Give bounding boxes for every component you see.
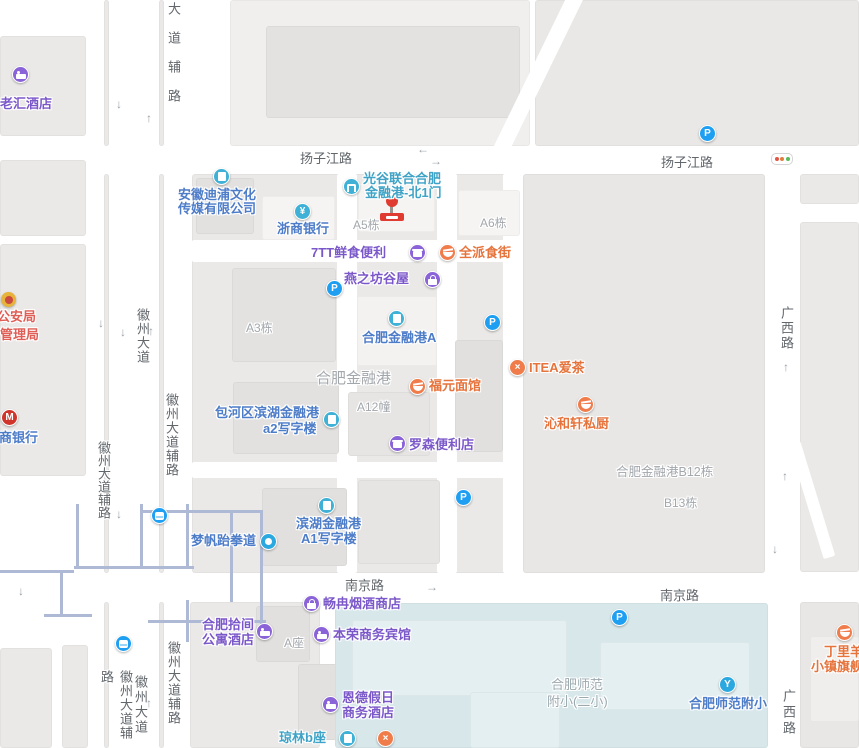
lane-divider: [104, 0, 109, 146]
convenience-store-icon[interactable]: [409, 244, 426, 261]
area-label: A3栋: [246, 319, 273, 336]
poi-label[interactable]: 梦帆跆拳道: [191, 533, 256, 548]
road: [437, 174, 457, 573]
school-icon[interactable]: Y: [719, 676, 736, 693]
poi-label[interactable]: 福元面馆: [429, 378, 481, 393]
poi-label[interactable]: 包河区滨湖金融港: [215, 405, 319, 420]
map-block: [0, 648, 52, 748]
area-label: A座: [284, 634, 304, 651]
direction-arrow: ↓: [120, 326, 126, 338]
area-label: A12幢: [357, 398, 390, 415]
restaurant-icon[interactable]: ×: [509, 359, 526, 376]
parking-icon[interactable]: P: [611, 609, 628, 626]
direction-arrow: ↓: [116, 508, 122, 520]
road-label: 大道辅路: [164, 2, 183, 118]
building-icon[interactable]: [339, 730, 356, 747]
parking-icon[interactable]: P: [455, 489, 472, 506]
poi-label[interactable]: 市公安局: [0, 309, 36, 324]
parking-icon[interactable]: P: [326, 280, 343, 297]
poi-label[interactable]: 合肥拾间: [202, 617, 254, 632]
footpath-line: [186, 600, 189, 642]
footpath-line: [76, 504, 79, 569]
shop-bag-icon[interactable]: [303, 595, 320, 612]
area-label: 合肥金融港: [316, 367, 391, 388]
taekwondo-icon[interactable]: [260, 533, 277, 550]
poi-label[interactable]: 小镇旗舰店: [811, 659, 859, 674]
office-building-icon[interactable]: [318, 497, 335, 514]
map-block: [0, 160, 86, 236]
poi-label[interactable]: 丁里羊: [824, 644, 859, 659]
shop-bag-icon[interactable]: [424, 271, 441, 288]
bus-stop-icon[interactable]: [115, 635, 132, 652]
area-label: A5栋: [353, 216, 380, 233]
direction-arrow: ↓: [772, 543, 778, 555]
office-building-icon[interactable]: [323, 411, 340, 428]
hotel-icon[interactable]: [256, 623, 273, 640]
road-label: 扬子江路: [300, 148, 352, 167]
poi-label[interactable]: 罗森便利店: [409, 437, 474, 452]
direction-arrow: ↓: [18, 585, 24, 597]
poi-label[interactable]: 畅冉烟酒商店: [323, 596, 401, 611]
map-block: [0, 36, 86, 136]
poi-label[interactable]: 7TT鲜食便利: [311, 245, 386, 260]
road-label: 广西路: [777, 306, 796, 351]
poi-label[interactable]: 安徽迪浦文化: [178, 187, 256, 202]
poi-label[interactable]: 浙商银行: [277, 221, 329, 236]
bus-stop-icon[interactable]: [151, 507, 168, 524]
bank-logo-icon[interactable]: M: [1, 409, 18, 426]
road-label: 南京路: [660, 585, 699, 604]
map-canvas[interactable]: 大道辅路 扬子江路 扬子江路 徽州大道 徽州大道辅路 徽州大道辅路 南京路 南京…: [0, 0, 859, 748]
area-label: A6栋: [480, 214, 507, 231]
poi-label[interactable]: 滨湖金融港: [296, 516, 361, 531]
poi-label[interactable]: ITEA爱茶: [529, 360, 585, 375]
hotel-icon[interactable]: [313, 626, 330, 643]
gate-icon[interactable]: [343, 178, 360, 195]
building-block: [232, 268, 336, 362]
poi-label[interactable]: 商务酒店: [342, 705, 394, 720]
direction-arrow: ↑: [148, 325, 154, 337]
direction-arrow: ↓: [116, 98, 122, 110]
footpath-line: [230, 510, 233, 602]
poi-label[interactable]: 琼林b座: [279, 730, 326, 745]
company-icon[interactable]: [213, 168, 230, 185]
poi-label[interactable]: 光谷联合合肥: [363, 171, 441, 186]
area-label: B13栋: [664, 494, 697, 511]
road: [192, 462, 523, 478]
building-block: [455, 340, 503, 452]
map-block: [800, 174, 859, 204]
footpath-line: [44, 614, 92, 617]
direction-arrow: ↑: [146, 112, 152, 124]
footpath-line: [186, 504, 189, 569]
police-badge-icon[interactable]: [1, 292, 16, 307]
restaurant-icon[interactable]: [836, 624, 853, 641]
traffic-light-icon: [771, 153, 793, 165]
area-label: 合肥金融港B12栋: [616, 461, 713, 480]
road-label: 徽州大道辅路: [164, 641, 183, 725]
direction-arrow: →: [430, 155, 442, 167]
office-building-icon[interactable]: [388, 310, 405, 327]
poi-label[interactable]: 传媒有限公司: [178, 201, 256, 216]
poi-label[interactable]: 招商银行: [0, 430, 38, 445]
poi-label[interactable]: a2写字楼: [263, 421, 316, 436]
direction-arrow: →: [426, 581, 438, 593]
direction-arrow: ↑: [782, 470, 788, 482]
noodle-restaurant-icon[interactable]: [409, 378, 426, 395]
direction-arrow: ↑: [146, 697, 152, 709]
poi-label[interactable]: A1写字楼: [301, 531, 357, 546]
poi-label[interactable]: 全派食街: [459, 245, 511, 260]
area-label: 附小(二小): [547, 691, 608, 710]
food-court-icon[interactable]: [439, 244, 456, 261]
footpath-line: [60, 572, 63, 616]
poi-label[interactable]: 管理局: [0, 327, 39, 342]
road-label: 广西路: [779, 689, 798, 737]
building-block: [266, 26, 520, 118]
poi-label[interactable]: 金融港-北1门: [365, 185, 442, 200]
direction-arrow: ↓: [98, 317, 104, 329]
map-block: [62, 645, 88, 748]
poi-label[interactable]: 合肥金融港A: [362, 330, 436, 345]
poi-label[interactable]: 公寓酒店: [202, 632, 254, 647]
building-block: [358, 480, 440, 564]
footpath-line: [140, 504, 143, 569]
map-block: [535, 0, 859, 146]
destination-marker-base: [380, 213, 404, 221]
road-label: 徽州大道辅路: [94, 441, 113, 519]
hotel-icon[interactable]: [12, 66, 29, 83]
poi-label[interactable]: 本荣商务宾馆: [333, 627, 411, 642]
poi-label[interactable]: 老汇酒店: [0, 96, 52, 111]
map-block: [800, 222, 859, 572]
road-label: 徽州大道辅路: [97, 670, 135, 748]
hotel-icon[interactable]: [322, 696, 339, 713]
bank-icon[interactable]: ¥: [294, 203, 311, 220]
parking-icon[interactable]: P: [699, 125, 716, 142]
poi-label[interactable]: 合肥师范附小: [689, 696, 767, 711]
restaurant-icon[interactable]: ×: [377, 730, 394, 747]
poi-label[interactable]: 沁和轩私厨: [544, 416, 609, 431]
direction-arrow: ↑: [783, 361, 789, 373]
convenience-store-icon[interactable]: [389, 435, 406, 452]
footpath-line: [260, 510, 263, 627]
road-label: 徽州大道辅路: [162, 393, 181, 477]
poi-label[interactable]: 恩德假日: [342, 690, 394, 705]
poi-label[interactable]: 燕之坊谷屋: [344, 271, 409, 286]
direction-arrow: ←: [417, 143, 429, 155]
footpath-line: [74, 566, 194, 569]
private-kitchen-icon[interactable]: [577, 396, 594, 413]
road-label: 扬子江路: [661, 152, 713, 171]
road-label: 南京路: [345, 575, 384, 594]
parking-icon[interactable]: P: [484, 314, 501, 331]
